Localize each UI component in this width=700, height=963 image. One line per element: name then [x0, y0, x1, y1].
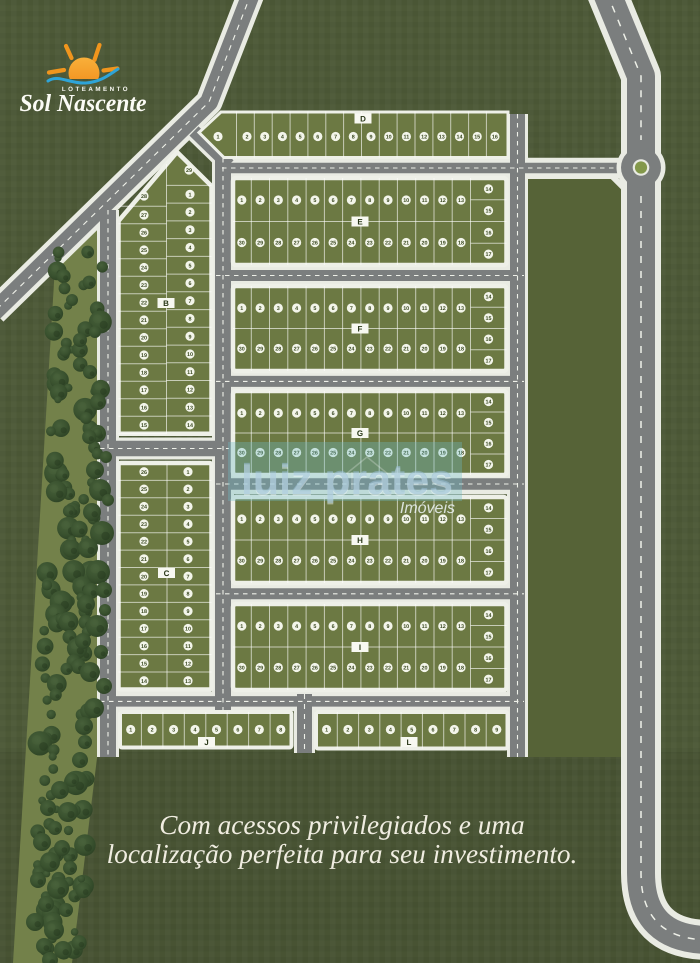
svg-text:13: 13 — [458, 517, 464, 523]
svg-text:5: 5 — [189, 263, 192, 269]
svg-text:24: 24 — [348, 347, 354, 353]
svg-text:10: 10 — [403, 198, 409, 204]
svg-text:12: 12 — [440, 306, 446, 312]
svg-text:23: 23 — [141, 522, 147, 528]
svg-text:22: 22 — [385, 666, 391, 672]
svg-text:18: 18 — [141, 371, 147, 377]
svg-text:21: 21 — [403, 241, 409, 247]
svg-text:9: 9 — [370, 135, 373, 141]
svg-text:4: 4 — [295, 411, 298, 417]
svg-text:10: 10 — [403, 624, 409, 630]
svg-text:10: 10 — [403, 411, 409, 417]
svg-text:29: 29 — [257, 241, 263, 247]
svg-text:26: 26 — [312, 559, 318, 565]
svg-text:2: 2 — [189, 210, 192, 216]
svg-text:30: 30 — [239, 347, 245, 353]
svg-text:6: 6 — [332, 306, 335, 312]
svg-text:1: 1 — [240, 624, 243, 630]
svg-text:8: 8 — [474, 728, 477, 734]
svg-text:3: 3 — [263, 135, 266, 141]
svg-text:14: 14 — [457, 135, 463, 141]
svg-text:16: 16 — [492, 135, 498, 141]
svg-text:27: 27 — [294, 347, 300, 353]
svg-text:F: F — [358, 324, 363, 333]
svg-text:3: 3 — [277, 517, 280, 523]
svg-text:14: 14 — [141, 679, 147, 685]
svg-text:7: 7 — [334, 135, 337, 141]
svg-text:5: 5 — [313, 517, 316, 523]
svg-text:7: 7 — [187, 574, 190, 580]
svg-text:7: 7 — [258, 728, 261, 734]
svg-text:29: 29 — [257, 666, 263, 672]
svg-text:4: 4 — [281, 135, 284, 141]
svg-text:8: 8 — [189, 317, 192, 323]
svg-text:8: 8 — [279, 728, 282, 734]
svg-text:22: 22 — [141, 540, 147, 546]
svg-text:H: H — [357, 536, 363, 545]
svg-text:15: 15 — [486, 421, 492, 427]
svg-text:12: 12 — [440, 198, 446, 204]
svg-text:21: 21 — [141, 557, 147, 563]
svg-text:15: 15 — [486, 316, 492, 322]
svg-text:21: 21 — [141, 318, 147, 324]
svg-text:26: 26 — [312, 241, 318, 247]
svg-text:4: 4 — [295, 306, 298, 312]
svg-text:10: 10 — [403, 517, 409, 523]
svg-text:12: 12 — [187, 388, 193, 394]
svg-text:19: 19 — [440, 241, 446, 247]
svg-text:16: 16 — [141, 406, 147, 412]
svg-text:15: 15 — [141, 661, 147, 667]
svg-text:1: 1 — [129, 728, 132, 734]
svg-text:3: 3 — [368, 728, 371, 734]
svg-text:8: 8 — [368, 411, 371, 417]
svg-text:13: 13 — [185, 679, 191, 685]
svg-text:4: 4 — [194, 728, 197, 734]
svg-text:19: 19 — [440, 559, 446, 565]
svg-text:6: 6 — [316, 135, 319, 141]
svg-text:7: 7 — [350, 624, 353, 630]
svg-text:13: 13 — [458, 411, 464, 417]
svg-text:5: 5 — [215, 728, 218, 734]
svg-text:17: 17 — [486, 359, 492, 365]
svg-text:1: 1 — [240, 411, 243, 417]
svg-text:16: 16 — [486, 656, 492, 662]
svg-text:24: 24 — [141, 266, 147, 272]
svg-text:25: 25 — [330, 559, 336, 565]
svg-text:6: 6 — [332, 624, 335, 630]
svg-text:5: 5 — [313, 198, 316, 204]
svg-text:24: 24 — [348, 666, 354, 672]
svg-text:1: 1 — [187, 470, 190, 476]
svg-text:8: 8 — [187, 592, 190, 598]
svg-text:Sol Nascente: Sol Nascente — [20, 90, 147, 117]
svg-text:27: 27 — [294, 241, 300, 247]
svg-text:9: 9 — [387, 517, 390, 523]
svg-text:5: 5 — [299, 135, 302, 141]
svg-text:1: 1 — [217, 135, 220, 141]
svg-text:9: 9 — [387, 624, 390, 630]
svg-text:15: 15 — [141, 423, 147, 429]
svg-text:6: 6 — [236, 728, 239, 734]
svg-text:5: 5 — [187, 540, 190, 546]
svg-text:12: 12 — [421, 135, 427, 141]
svg-text:Com acessos privilegiados e um: Com acessos privilegiados e uma — [159, 810, 524, 840]
svg-text:1: 1 — [189, 192, 192, 198]
svg-text:18: 18 — [458, 241, 464, 247]
svg-text:20: 20 — [422, 241, 428, 247]
svg-text:22: 22 — [141, 301, 147, 307]
svg-text:14: 14 — [486, 506, 492, 512]
svg-text:29: 29 — [257, 559, 263, 565]
svg-text:19: 19 — [440, 347, 446, 353]
svg-text:13: 13 — [458, 198, 464, 204]
svg-text:12: 12 — [440, 517, 446, 523]
svg-text:6: 6 — [332, 517, 335, 523]
svg-text:22: 22 — [385, 241, 391, 247]
svg-text:28: 28 — [275, 666, 281, 672]
svg-text:15: 15 — [486, 527, 492, 533]
svg-text:E: E — [357, 217, 363, 226]
svg-text:11: 11 — [422, 517, 428, 523]
svg-text:13: 13 — [458, 624, 464, 630]
svg-text:20: 20 — [422, 559, 428, 565]
svg-text:28: 28 — [141, 194, 147, 200]
svg-text:5: 5 — [313, 411, 316, 417]
svg-text:27: 27 — [294, 559, 300, 565]
svg-text:19: 19 — [440, 666, 446, 672]
svg-text:4: 4 — [189, 246, 192, 252]
svg-text:14: 14 — [486, 187, 492, 193]
svg-text:12: 12 — [185, 661, 191, 667]
svg-text:3: 3 — [277, 624, 280, 630]
svg-text:9: 9 — [189, 334, 192, 340]
svg-text:28: 28 — [275, 559, 281, 565]
svg-text:2: 2 — [346, 728, 349, 734]
svg-text:9: 9 — [187, 609, 190, 615]
svg-text:3: 3 — [189, 228, 192, 234]
svg-text:4: 4 — [295, 624, 298, 630]
svg-text:17: 17 — [486, 252, 492, 258]
svg-text:6: 6 — [187, 557, 190, 563]
svg-text:26: 26 — [312, 347, 318, 353]
svg-text:5: 5 — [313, 306, 316, 312]
svg-text:14: 14 — [486, 400, 492, 406]
svg-text:12: 12 — [440, 624, 446, 630]
svg-text:16: 16 — [486, 337, 492, 343]
svg-text:8: 8 — [368, 517, 371, 523]
svg-text:6: 6 — [332, 411, 335, 417]
svg-text:1: 1 — [325, 728, 328, 734]
svg-text:4: 4 — [295, 198, 298, 204]
svg-text:14: 14 — [486, 613, 492, 619]
svg-text:3: 3 — [277, 198, 280, 204]
svg-text:20: 20 — [422, 347, 428, 353]
svg-text:26: 26 — [141, 470, 147, 476]
svg-text:27: 27 — [141, 213, 147, 219]
svg-text:4: 4 — [295, 517, 298, 523]
svg-text:9: 9 — [387, 411, 390, 417]
svg-text:7: 7 — [350, 306, 353, 312]
svg-text:3: 3 — [172, 728, 175, 734]
svg-text:30: 30 — [239, 666, 245, 672]
svg-text:Imóveis: Imóveis — [400, 500, 455, 517]
svg-text:17: 17 — [486, 677, 492, 683]
svg-text:2: 2 — [259, 517, 262, 523]
svg-text:2: 2 — [151, 728, 154, 734]
svg-text:21: 21 — [403, 559, 409, 565]
svg-text:23: 23 — [367, 241, 373, 247]
svg-text:13: 13 — [458, 306, 464, 312]
svg-text:12: 12 — [440, 411, 446, 417]
svg-text:24: 24 — [348, 559, 354, 565]
svg-text:localização perfeita para seu: localização perfeita para seu investimen… — [107, 839, 578, 869]
svg-text:22: 22 — [385, 347, 391, 353]
svg-text:11: 11 — [422, 306, 428, 312]
svg-text:C: C — [164, 569, 170, 578]
svg-text:11: 11 — [422, 624, 428, 630]
svg-text:10: 10 — [386, 135, 392, 141]
svg-text:7: 7 — [350, 198, 353, 204]
svg-text:6: 6 — [189, 281, 192, 287]
svg-text:8: 8 — [352, 135, 355, 141]
svg-text:30: 30 — [239, 559, 245, 565]
svg-text:7: 7 — [189, 299, 192, 305]
svg-text:L: L — [407, 738, 412, 747]
svg-text:J: J — [204, 738, 208, 747]
svg-text:11: 11 — [422, 411, 428, 417]
svg-text:8: 8 — [368, 624, 371, 630]
svg-text:luiz prates: luiz prates — [241, 456, 453, 504]
svg-text:7: 7 — [453, 728, 456, 734]
svg-text:8: 8 — [368, 198, 371, 204]
svg-text:4: 4 — [187, 522, 190, 528]
svg-text:24: 24 — [141, 505, 147, 511]
svg-text:13: 13 — [439, 135, 445, 141]
svg-text:G: G — [357, 429, 363, 438]
svg-text:17: 17 — [141, 627, 147, 633]
svg-text:20: 20 — [141, 574, 147, 580]
svg-text:17: 17 — [141, 388, 147, 394]
svg-text:1: 1 — [240, 306, 243, 312]
svg-text:15: 15 — [474, 135, 480, 141]
svg-text:20: 20 — [141, 336, 147, 342]
svg-text:17: 17 — [486, 570, 492, 576]
svg-text:19: 19 — [141, 592, 147, 598]
svg-text:22: 22 — [385, 559, 391, 565]
svg-text:27: 27 — [294, 666, 300, 672]
svg-text:25: 25 — [330, 241, 336, 247]
svg-text:D: D — [360, 114, 366, 123]
svg-text:23: 23 — [367, 666, 373, 672]
svg-text:30: 30 — [239, 241, 245, 247]
svg-text:18: 18 — [458, 347, 464, 353]
svg-text:5: 5 — [313, 624, 316, 630]
svg-text:16: 16 — [486, 549, 492, 555]
svg-text:2: 2 — [259, 198, 262, 204]
svg-text:18: 18 — [458, 559, 464, 565]
svg-text:6: 6 — [432, 728, 435, 734]
svg-text:11: 11 — [422, 198, 428, 204]
svg-text:3: 3 — [277, 411, 280, 417]
svg-text:1: 1 — [240, 517, 243, 523]
svg-text:14: 14 — [486, 295, 492, 301]
svg-text:28: 28 — [275, 241, 281, 247]
svg-text:5: 5 — [410, 728, 413, 734]
svg-text:11: 11 — [185, 644, 191, 650]
svg-text:26: 26 — [312, 666, 318, 672]
svg-text:17: 17 — [486, 463, 492, 469]
svg-text:2: 2 — [259, 306, 262, 312]
svg-text:7: 7 — [350, 411, 353, 417]
svg-text:10: 10 — [187, 352, 193, 358]
svg-text:3: 3 — [277, 306, 280, 312]
svg-text:9: 9 — [495, 728, 498, 734]
svg-text:13: 13 — [187, 405, 193, 411]
svg-text:11: 11 — [187, 370, 193, 376]
svg-text:23: 23 — [141, 283, 147, 289]
svg-text:26: 26 — [141, 231, 147, 237]
svg-text:19: 19 — [141, 353, 147, 359]
svg-text:14: 14 — [187, 423, 193, 429]
svg-text:10: 10 — [185, 627, 191, 633]
svg-text:29: 29 — [257, 347, 263, 353]
svg-text:23: 23 — [367, 559, 373, 565]
svg-text:9: 9 — [387, 198, 390, 204]
svg-text:2: 2 — [246, 135, 249, 141]
svg-text:25: 25 — [141, 248, 147, 254]
svg-text:18: 18 — [458, 666, 464, 672]
svg-text:1: 1 — [240, 198, 243, 204]
svg-text:2: 2 — [187, 487, 190, 493]
svg-text:7: 7 — [350, 517, 353, 523]
svg-text:15: 15 — [486, 209, 492, 215]
svg-text:24: 24 — [348, 241, 354, 247]
svg-text:6: 6 — [332, 198, 335, 204]
svg-text:25: 25 — [330, 666, 336, 672]
svg-text:8: 8 — [368, 306, 371, 312]
svg-text:9: 9 — [387, 306, 390, 312]
svg-text:21: 21 — [403, 347, 409, 353]
svg-text:16: 16 — [141, 644, 147, 650]
svg-text:16: 16 — [486, 231, 492, 237]
svg-text:23: 23 — [367, 347, 373, 353]
svg-text:18: 18 — [141, 609, 147, 615]
svg-text:25: 25 — [330, 347, 336, 353]
svg-text:16: 16 — [486, 442, 492, 448]
svg-text:3: 3 — [187, 505, 190, 511]
svg-text:25: 25 — [141, 487, 147, 493]
svg-text:15: 15 — [486, 634, 492, 640]
svg-text:B: B — [163, 299, 169, 308]
svg-text:28: 28 — [275, 347, 281, 353]
svg-text:2: 2 — [259, 624, 262, 630]
svg-text:11: 11 — [404, 135, 410, 141]
svg-text:4: 4 — [389, 728, 392, 734]
svg-text:I: I — [359, 643, 361, 652]
svg-text:20: 20 — [422, 666, 428, 672]
svg-text:21: 21 — [403, 666, 409, 672]
svg-text:10: 10 — [403, 306, 409, 312]
svg-text:29: 29 — [186, 168, 192, 174]
svg-text:2: 2 — [259, 411, 262, 417]
